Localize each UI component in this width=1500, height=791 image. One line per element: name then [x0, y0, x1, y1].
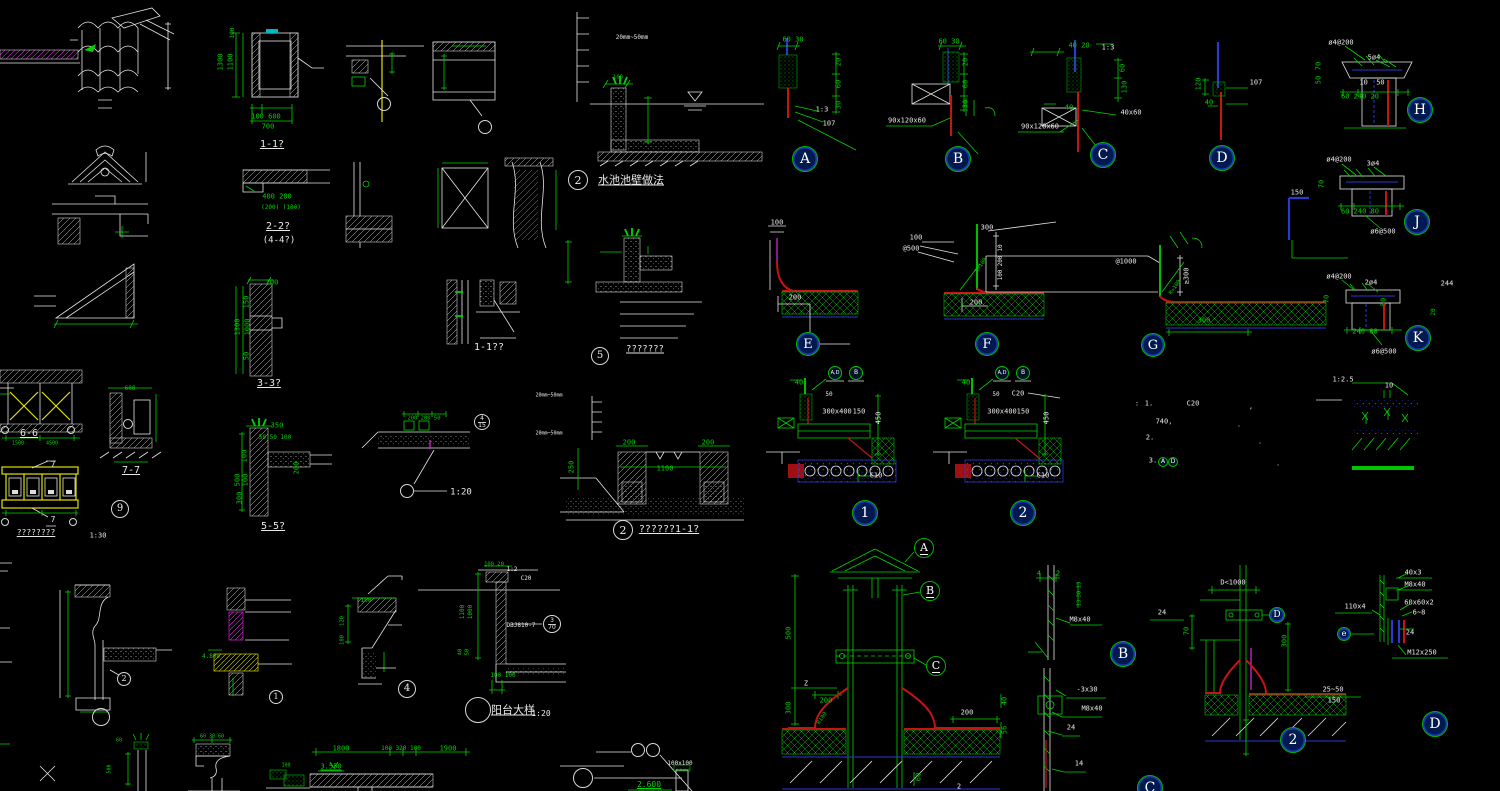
wall-section-magenta: [208, 588, 292, 696]
pit-section-detail: [560, 396, 744, 520]
detail-slope-1-2-5: [1316, 383, 1418, 470]
detail-H-beam: [1340, 46, 1412, 128]
cad-linework: [0, 0, 1500, 791]
flashing-detail-yellow: [346, 40, 424, 122]
section-6-6-girder: [0, 370, 82, 441]
roof-tile-detail: [70, 8, 174, 108]
detail-G-roof-upstand: [986, 232, 1326, 336]
parapet-gutter-detail: [52, 196, 148, 244]
balcony-detail-4: [345, 576, 402, 684]
balustrade-elevation: [2, 461, 78, 526]
balcony-detail-main: [418, 566, 566, 694]
detail-D-anchor: [1335, 573, 1448, 658]
detail-2-pipe-footing: [1189, 565, 1361, 756]
detail-C-coping: [1018, 40, 1122, 152]
expansion-joint-detail: [362, 411, 470, 491]
cad-drawing-canvas[interactable]: 60 302060301:310760 3020603090x120x6040 …: [0, 0, 1500, 791]
wall-footing-section: [346, 162, 392, 248]
frame-detail-right: [433, 42, 495, 116]
x-box-plan-detail: [438, 163, 488, 228]
cornice-section: [60, 585, 172, 712]
detail-F-roof-upstand: [918, 222, 1056, 319]
edge-fragments: [0, 388, 14, 744]
curb-detail-5: [565, 228, 702, 338]
detail-E-roof-edge: [768, 226, 858, 344]
detail-1-eave: [766, 378, 896, 482]
pool-wall-detail: [577, 12, 764, 166]
section-3-3: [236, 277, 282, 376]
section-2-2-slab: [243, 170, 330, 192]
section-1-1-frame: [232, 29, 324, 124]
detail-B-coping: [886, 42, 995, 154]
grid-bubble-leaders: [560, 752, 692, 791]
section-1-1b: [447, 280, 520, 344]
detail-K-beam: [1342, 280, 1402, 345]
detail-D-coping: [1202, 42, 1248, 140]
beam-elevation-bottom: [310, 748, 470, 791]
bottom-row-details: [40, 733, 310, 791]
detail-A-coping: [777, 38, 856, 150]
section-7-7-channel: [100, 388, 161, 462]
curved-pier-detail: [505, 158, 556, 248]
detail-J-beam: [1289, 164, 1404, 258]
detail-2-eave: [933, 378, 1063, 482]
sloped-roof-section: [34, 264, 138, 328]
section-5-5: [239, 418, 332, 516]
roof-ridge-detail: [68, 146, 146, 184]
vent-pipe-detail: [782, 549, 1001, 789]
detail-B-bracket: [1028, 565, 1184, 791]
